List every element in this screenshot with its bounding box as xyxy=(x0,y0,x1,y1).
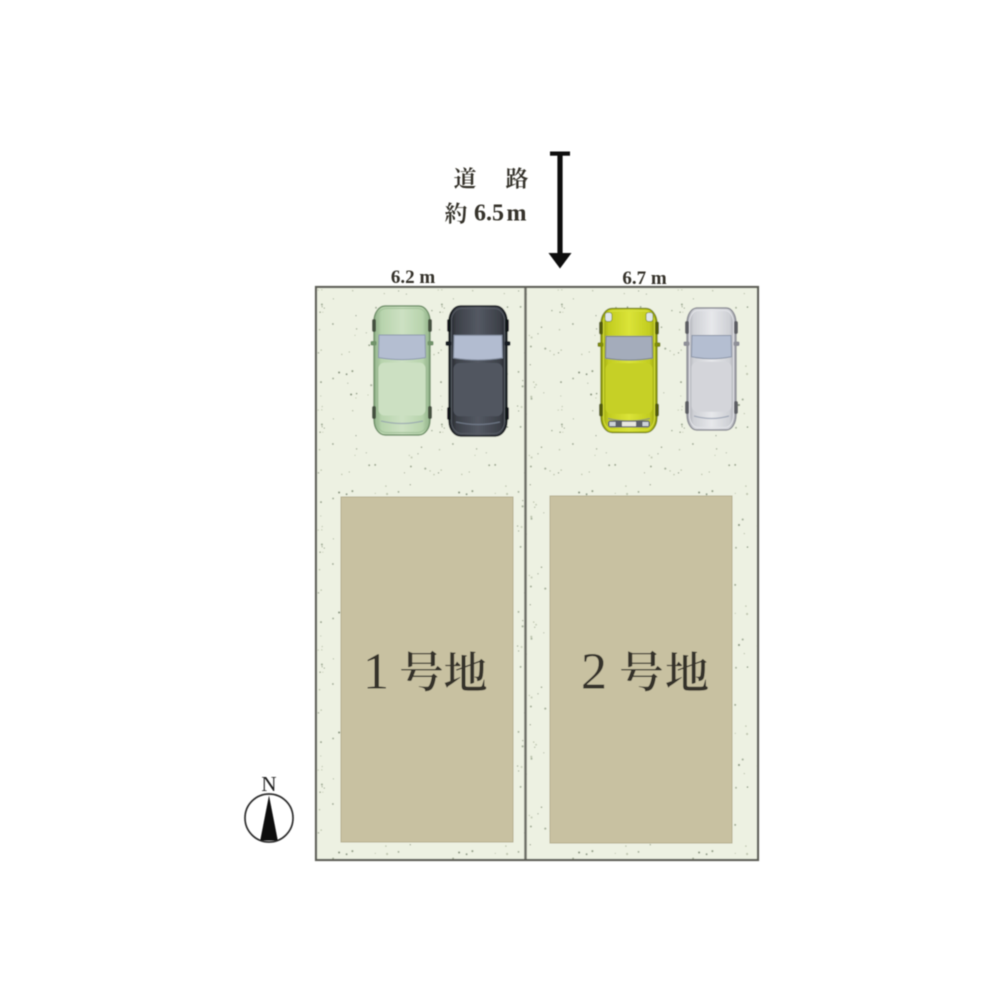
svg-text:N: N xyxy=(261,772,276,796)
svg-text:m: m xyxy=(507,201,527,227)
svg-text:6.7 m: 6.7 m xyxy=(622,268,667,289)
svg-text:2: 2 xyxy=(581,644,607,701)
svg-text:6.2 m: 6.2 m xyxy=(391,267,436,288)
svg-text:1: 1 xyxy=(363,644,389,701)
svg-text:6.5: 6.5 xyxy=(474,201,504,227)
